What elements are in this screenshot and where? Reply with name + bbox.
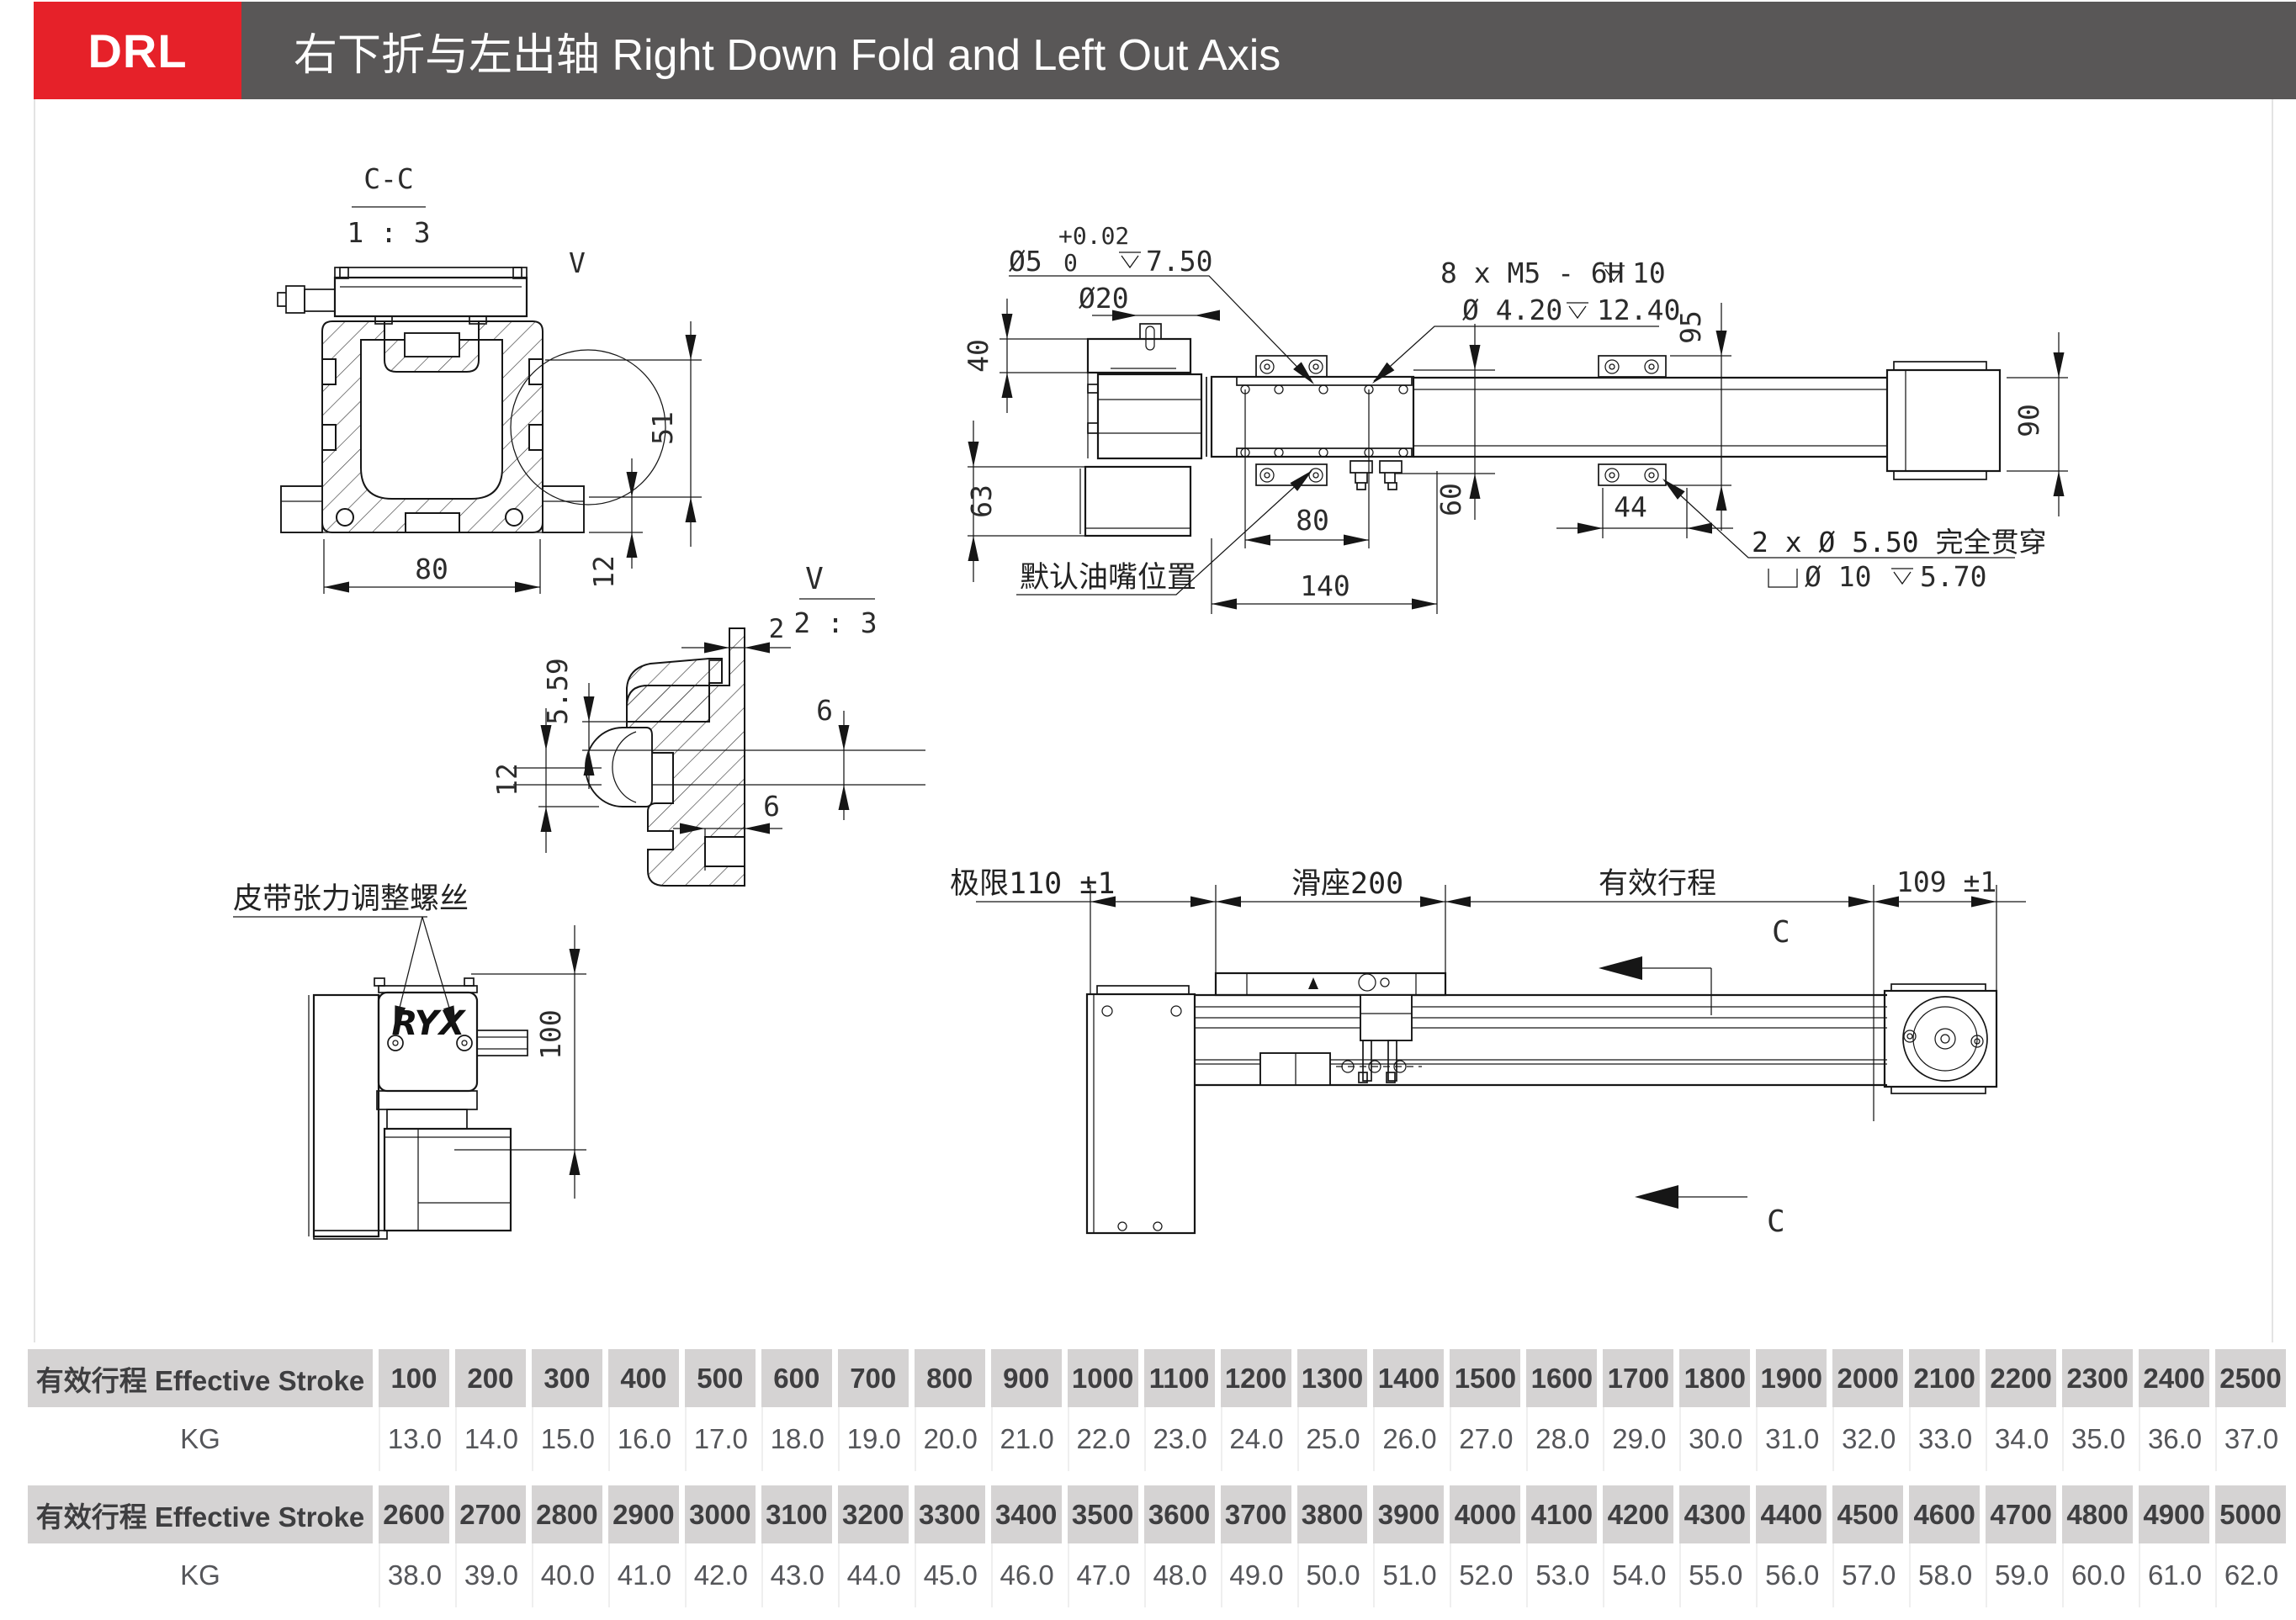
stroke-value-cell: 2500 (2215, 1349, 2286, 1407)
kg-value-cell: 27.0 (1450, 1407, 1520, 1471)
stroke-header-cell: 有效行程 Effective Stroke (28, 1349, 373, 1407)
stroke-value-cell: 2300 (2062, 1349, 2133, 1407)
stroke-value-cell: 4300 (1679, 1485, 1750, 1543)
kg-value-cell: 43.0 (761, 1543, 832, 1607)
kg-value-cell: 36.0 (2139, 1407, 2209, 1471)
kg-value-cell: 40.0 (532, 1543, 602, 1607)
stroke-value-cell: 1200 (1221, 1349, 1291, 1407)
kg-header-cell: KG (28, 1407, 373, 1471)
stroke-value-cell: 3800 (1297, 1485, 1368, 1543)
stroke-value-cell: 4400 (1756, 1485, 1827, 1543)
kg-value-cell: 34.0 (1986, 1407, 2056, 1471)
stroke-table-section: 有效行程 Effective Stroke2600270028002900300… (28, 1485, 2286, 1607)
stroke-value-cell: 1500 (1450, 1349, 1520, 1407)
stroke-value-cell: 4000 (1450, 1485, 1520, 1543)
stroke-value-cell: 4100 (1526, 1485, 1597, 1543)
kg-value-cell: 23.0 (1144, 1407, 1215, 1471)
stroke-value-cell: 4900 (2139, 1485, 2209, 1543)
stroke-value-cell: 3200 (838, 1485, 909, 1543)
kg-value-cell: 49.0 (1221, 1543, 1291, 1607)
kg-value-cell: 55.0 (1679, 1543, 1750, 1607)
stroke-value-cell: 700 (838, 1349, 909, 1407)
stroke-value-cell: 3700 (1221, 1485, 1291, 1543)
kg-value-cell: 61.0 (2139, 1543, 2209, 1607)
page-title: 右下折与左出轴 Right Down Fold and Left Out Axi… (294, 19, 1281, 82)
stroke-value-cell: 1800 (1679, 1349, 1750, 1407)
stroke-value-cell: 1900 (1756, 1349, 1827, 1407)
kg-value-cell: 39.0 (455, 1543, 526, 1607)
kg-value-cell: 60.0 (2062, 1543, 2133, 1607)
stroke-value-cell: 200 (455, 1349, 526, 1407)
kg-value-cell: 30.0 (1679, 1407, 1750, 1471)
kg-value-cell: 62.0 (2215, 1543, 2286, 1607)
kg-value-cell: 21.0 (991, 1407, 1062, 1471)
stroke-value-cell: 1300 (1297, 1349, 1368, 1407)
stroke-value-cell: 2400 (2139, 1349, 2209, 1407)
stroke-header-cell: 有效行程 Effective Stroke (28, 1485, 373, 1543)
kg-value-cell: 29.0 (1603, 1407, 1673, 1471)
kg-value-cell: 31.0 (1756, 1407, 1827, 1471)
stroke-value-cell: 800 (915, 1349, 985, 1407)
stroke-value-cell: 1100 (1144, 1349, 1215, 1407)
stroke-value-cell: 900 (991, 1349, 1062, 1407)
stroke-value-cell: 4500 (1832, 1485, 1903, 1543)
kg-value-cell: 53.0 (1526, 1543, 1597, 1607)
kg-value-cell: 44.0 (838, 1543, 909, 1607)
kg-value-cell: 46.0 (991, 1543, 1062, 1607)
kg-value-cell: 13.0 (379, 1407, 449, 1471)
kg-value-cell: 51.0 (1373, 1543, 1444, 1607)
kg-value-cell: 38.0 (379, 1543, 449, 1607)
stroke-value-cell: 4800 (2062, 1485, 2133, 1543)
stroke-value-cell: 400 (608, 1349, 679, 1407)
kg-value-cell: 52.0 (1450, 1543, 1520, 1607)
kg-value-cell: 16.0 (608, 1407, 679, 1471)
kg-value-cell: 48.0 (1144, 1543, 1215, 1607)
drawing-area-frame (34, 99, 2273, 1342)
stroke-value-cell: 1400 (1373, 1349, 1444, 1407)
stroke-value-cell: 600 (761, 1349, 832, 1407)
stroke-value-cell: 100 (379, 1349, 449, 1407)
stroke-value-cell: 3300 (915, 1485, 985, 1543)
stroke-value-cell: 2900 (608, 1485, 679, 1543)
kg-value-cell: 54.0 (1603, 1543, 1673, 1607)
kg-value-cell: 26.0 (1373, 1407, 1444, 1471)
stroke-value-cell: 1700 (1603, 1349, 1673, 1407)
kg-value-cell: 47.0 (1068, 1543, 1138, 1607)
stroke-value-cell: 300 (532, 1349, 602, 1407)
kg-value-cell: 59.0 (1986, 1543, 2056, 1607)
kg-value-cell: 18.0 (761, 1407, 832, 1471)
kg-value-cell: 32.0 (1832, 1407, 1903, 1471)
model-badge: DRL (34, 2, 241, 99)
stroke-value-cell: 3000 (685, 1485, 756, 1543)
kg-header-cell: KG (28, 1543, 373, 1607)
kg-value-cell: 50.0 (1297, 1543, 1368, 1607)
stroke-value-cell: 3400 (991, 1485, 1062, 1543)
stroke-value-cell: 2800 (532, 1485, 602, 1543)
kg-value-cell: 24.0 (1221, 1407, 1291, 1471)
kg-value-cell: 22.0 (1068, 1407, 1138, 1471)
kg-value-cell: 15.0 (532, 1407, 602, 1471)
stroke-value-cell: 3600 (1144, 1485, 1215, 1543)
stroke-value-cell: 2100 (1909, 1349, 1980, 1407)
kg-value-cell: 20.0 (915, 1407, 985, 1471)
stroke-value-cell: 3100 (761, 1485, 832, 1543)
kg-value-cell: 45.0 (915, 1543, 985, 1607)
kg-value-cell: 57.0 (1832, 1543, 1903, 1607)
stroke-value-cell: 3900 (1373, 1485, 1444, 1543)
kg-value-cell: 37.0 (2215, 1407, 2286, 1471)
stroke-value-cell: 2600 (379, 1485, 449, 1543)
stroke-value-cell: 500 (685, 1349, 756, 1407)
stroke-value-cell: 2000 (1832, 1349, 1903, 1407)
kg-value-cell: 28.0 (1526, 1407, 1597, 1471)
kg-value-cell: 17.0 (685, 1407, 756, 1471)
stroke-value-cell: 1000 (1068, 1349, 1138, 1407)
kg-value-cell: 42.0 (685, 1543, 756, 1607)
stroke-value-cell: 2700 (455, 1485, 526, 1543)
kg-value-cell: 41.0 (608, 1543, 679, 1607)
kg-value-cell: 19.0 (838, 1407, 909, 1471)
page-header: DRL 右下折与左出轴 Right Down Fold and Left Out… (34, 2, 2296, 99)
stroke-table-section: 有效行程 Effective Stroke1002003004005006007… (28, 1349, 2286, 1471)
stroke-value-cell: 4700 (1986, 1485, 2056, 1543)
kg-value-cell: 25.0 (1297, 1407, 1368, 1471)
stroke-value-cell: 4600 (1909, 1485, 1980, 1543)
kg-value-cell: 14.0 (455, 1407, 526, 1471)
kg-value-cell: 33.0 (1909, 1407, 1980, 1471)
stroke-value-cell: 5000 (2215, 1485, 2286, 1543)
kg-value-cell: 56.0 (1756, 1543, 1827, 1607)
stroke-payload-table: 有效行程 Effective Stroke1002003004005006007… (28, 1349, 2286, 1607)
stroke-value-cell: 3500 (1068, 1485, 1138, 1543)
stroke-value-cell: 4200 (1603, 1485, 1673, 1543)
stroke-value-cell: 2200 (1986, 1349, 2056, 1407)
kg-value-cell: 35.0 (2062, 1407, 2133, 1471)
kg-value-cell: 58.0 (1909, 1543, 1980, 1607)
stroke-value-cell: 1600 (1526, 1349, 1597, 1407)
